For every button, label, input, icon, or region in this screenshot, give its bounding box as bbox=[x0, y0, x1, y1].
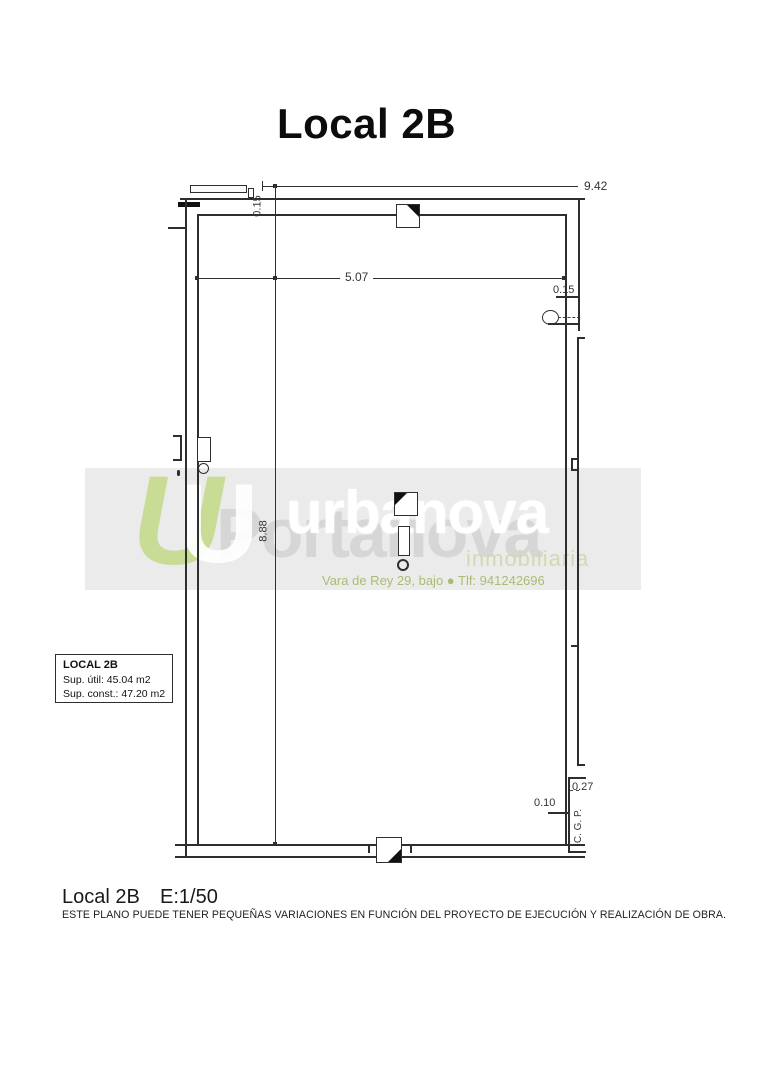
info-box-sup-const: Sup. const.: 47.20 m2 bbox=[63, 688, 172, 702]
dim-label-wall-top: 0.15 bbox=[253, 195, 264, 216]
wall-right-offset bbox=[577, 337, 579, 765]
bracket-detail bbox=[180, 435, 182, 461]
floor-plan-drawing: 9.42 0.15 8.88 5.07 0.15 bbox=[0, 0, 763, 1080]
wall-tick bbox=[571, 645, 578, 647]
wall-top-outer bbox=[180, 198, 585, 200]
wall-notch bbox=[571, 469, 577, 471]
cgp-label: C. G. P. bbox=[574, 809, 584, 843]
wall-left-inner bbox=[197, 214, 199, 846]
floor-plan-page: Local 2B U Portanova U urbanova inmobili… bbox=[0, 0, 763, 1080]
dim-label-interior-length: 8.88 bbox=[259, 520, 270, 541]
dim-label-wall-right: 0.15 bbox=[551, 285, 576, 296]
dim-tick-line bbox=[556, 296, 580, 298]
floor-drain-circle bbox=[397, 559, 409, 571]
cgp-bracket bbox=[568, 777, 570, 853]
column-symbol bbox=[398, 526, 410, 556]
wall-right-outer-upper bbox=[578, 198, 580, 331]
drain-triangle bbox=[407, 205, 419, 217]
door-jamb bbox=[410, 844, 412, 853]
bracket-detail bbox=[173, 459, 181, 461]
cgp-bracket bbox=[568, 851, 586, 853]
electrical-panel-symbol bbox=[197, 437, 211, 462]
dim-label-interior-width: 5.07 bbox=[340, 271, 373, 283]
cgp-bracket bbox=[568, 777, 586, 779]
wall-left-outer bbox=[185, 198, 187, 858]
panel-circle-symbol bbox=[198, 463, 209, 474]
door-jamb bbox=[368, 844, 370, 853]
dim-tick bbox=[273, 184, 277, 188]
dim-tick-line bbox=[548, 812, 568, 814]
dim-line-interior-length bbox=[275, 186, 276, 845]
dim-label-cgp-width: 0.10 bbox=[534, 798, 555, 809]
pipe-dash-line bbox=[558, 317, 580, 318]
drain-triangle bbox=[395, 493, 407, 505]
dim-label-cgp-depth: 0.27 bbox=[572, 782, 593, 793]
info-box-sup-util: Sup. útil: 45.04 m2 bbox=[63, 674, 172, 688]
door-triangle bbox=[388, 849, 401, 862]
drain-symbol-center bbox=[394, 492, 418, 516]
wall-end-cap bbox=[178, 202, 200, 207]
wall-right-offset-cap bbox=[577, 337, 585, 339]
dim-line-interior-width bbox=[197, 278, 565, 279]
dim-label-overall-width: 9.42 bbox=[584, 180, 607, 192]
wall-right-offset-cap bbox=[577, 764, 585, 766]
wall-ledge bbox=[168, 227, 185, 229]
info-box: LOCAL 2B Sup. útil: 45.04 m2 Sup. const.… bbox=[55, 654, 173, 703]
small-mark bbox=[177, 470, 180, 476]
drain-symbol-top bbox=[396, 204, 420, 228]
door-symbol-bottom bbox=[376, 837, 402, 863]
info-box-title: LOCAL 2B bbox=[63, 659, 172, 671]
dim-tick bbox=[262, 181, 263, 191]
dim-tick bbox=[195, 276, 199, 280]
dim-tick-line bbox=[548, 323, 580, 325]
awning-detail bbox=[190, 185, 247, 193]
wall-right-inner bbox=[565, 214, 567, 846]
dim-line-overall bbox=[262, 186, 578, 187]
